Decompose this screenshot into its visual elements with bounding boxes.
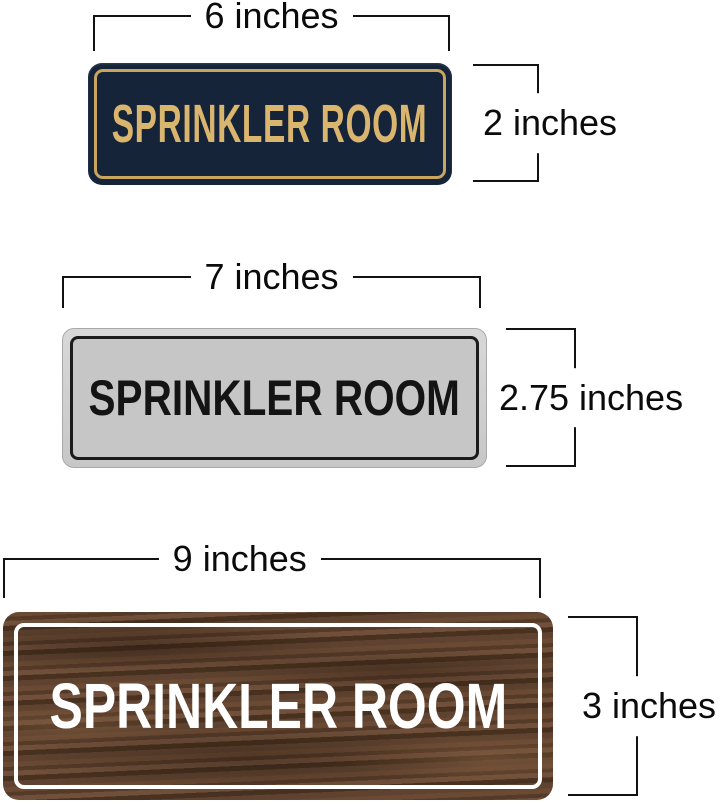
dimension-tick-bottom — [568, 794, 638, 796]
sign-silver: SPRINKLER ROOM — [62, 328, 487, 468]
height-label-sign3: 3 inches — [574, 676, 722, 736]
width-dimension-sign1: 6 inches — [93, 15, 450, 52]
dimension-tick-right — [448, 15, 450, 51]
width-label-sign1: 6 inches — [190, 0, 352, 38]
dimension-tick-right — [479, 276, 481, 308]
dimension-tick-left — [62, 276, 64, 308]
width-dimension-sign3: 9 inches — [3, 558, 541, 599]
dimension-tick-left — [93, 15, 95, 51]
sign-walnut-label: SPRINKLER ROOM — [49, 674, 507, 738]
size-diagram-canvas: 6 inches SPRINKLER ROOM 2 inches 7 inche… — [0, 0, 722, 805]
width-label-sign2: 7 inches — [190, 255, 352, 299]
sign-navy-gold-label: SPRINKLER ROOM — [112, 97, 428, 151]
height-dimension-sign3: 3 inches — [636, 616, 638, 796]
sign-walnut-wood: SPRINKLER ROOM — [3, 612, 553, 800]
width-dimension-sign2: 7 inches — [62, 276, 481, 309]
dimension-tick-left — [3, 558, 5, 598]
dimension-tick-bottom — [473, 180, 539, 182]
dimension-tick-bottom — [506, 465, 576, 467]
dimension-tick-top — [568, 616, 638, 618]
sign-silver-border: SPRINKLER ROOM — [70, 336, 479, 460]
dimension-tick-top — [473, 64, 539, 66]
dimension-tick-right — [539, 558, 541, 598]
height-label-sign1: 2 inches — [475, 93, 625, 153]
sign-navy-gold: SPRINKLER ROOM — [88, 63, 452, 185]
sign-walnut-border: SPRINKLER ROOM — [14, 623, 542, 789]
sign-navy-gold-border: SPRINKLER ROOM — [94, 69, 446, 179]
height-dimension-sign1: 2 inches — [537, 64, 539, 182]
width-label-sign3: 9 inches — [159, 537, 321, 581]
height-dimension-sign2: 2.75 inches — [574, 328, 576, 467]
sign-silver-label: SPRINKLER ROOM — [89, 373, 460, 423]
dimension-tick-top — [506, 328, 576, 330]
height-label-sign2: 2.75 inches — [491, 368, 691, 428]
